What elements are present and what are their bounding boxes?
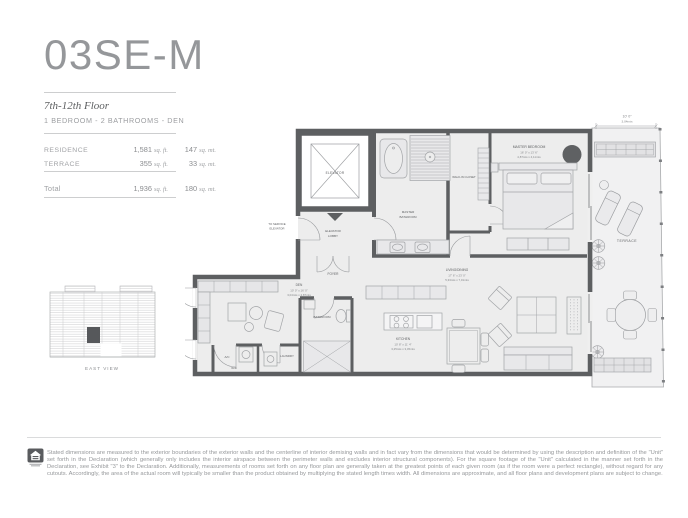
kitchen-label: KITCHEN	[396, 337, 411, 341]
footer-divider	[27, 437, 661, 438]
closet-shelves	[478, 148, 489, 200]
laundry-label: LAUNDRY	[280, 354, 294, 358]
walk-in-closet-label: WALK-IN CLOSET	[452, 175, 476, 179]
keyplan-building	[50, 286, 155, 357]
master-bedroom-dim-ft: 16' 0" x 13' 6"	[520, 150, 537, 154]
elevator-lobby-label-1: ELEVATOR	[325, 229, 341, 233]
service-elevator-label-1: TO SERVICE	[268, 222, 285, 226]
keyplan-unit-highlight	[87, 327, 100, 343]
service-elevator-label-2: ELEVATOR	[270, 227, 285, 231]
elevator-lobby-label-2: LOBBY	[328, 234, 338, 238]
terrace-label: TERRACE	[617, 239, 637, 243]
bathroom-label: BATHROOM	[313, 315, 331, 319]
keyplan-caption: EAST VIEW	[85, 366, 119, 371]
kitchen-dim-mt: 3,25mts x 3,45mts	[391, 347, 415, 351]
equal-housing-logo	[27, 448, 44, 467]
ac-label: A/C	[224, 355, 230, 359]
den-label: DEN	[296, 283, 303, 287]
wd-label: W/D	[231, 366, 236, 370]
side-table	[600, 181, 609, 190]
master-bedroom-dim-mt: 4,87mts x 4,11mts	[517, 155, 541, 159]
elevator-shaft	[299, 133, 371, 221]
terrace-planter-bottom	[594, 358, 651, 372]
terrace-area: TERRACE	[591, 128, 663, 387]
kitchen-dim-ft: 10' 8" x 11' 4"	[394, 342, 411, 346]
living-dining-label: LIVING/DINING	[446, 268, 469, 272]
disclaimer-text: Stated dimensions are measured to the ex…	[47, 450, 663, 478]
terrace-planter-top	[595, 142, 656, 157]
floorplan-drawing: TERRACE 10' 0" 3,04mts	[185, 105, 677, 397]
terrace-dim-mt: 3,04mts	[621, 120, 632, 124]
elevator-label: ELEVATOR	[326, 171, 345, 175]
floorplan-sheet: 03SE-M 7th-12th Floor 1 BEDROOM - 2 BATH…	[0, 0, 688, 518]
den-dim-ft: 10' 0" x 16' 0"	[290, 288, 307, 292]
master-bedroom-label: MASTER BEDROOM	[513, 145, 546, 149]
foyer-label: FOYER	[328, 272, 340, 276]
master-bathroom-label-1: MASTER	[402, 210, 415, 214]
terrace-dim-ft: 10' 0"	[623, 115, 633, 119]
master-bathroom-label-2: BATHROOM	[399, 215, 417, 219]
living-dining-dim-ft: 17' 6" x 23' 0"	[448, 273, 465, 277]
column	[563, 145, 582, 164]
living-dining-dim-mt: 5,33mts x 7,01mts	[445, 278, 469, 282]
den-dim-mt: 3,04mts x 4,87mts	[287, 293, 311, 297]
